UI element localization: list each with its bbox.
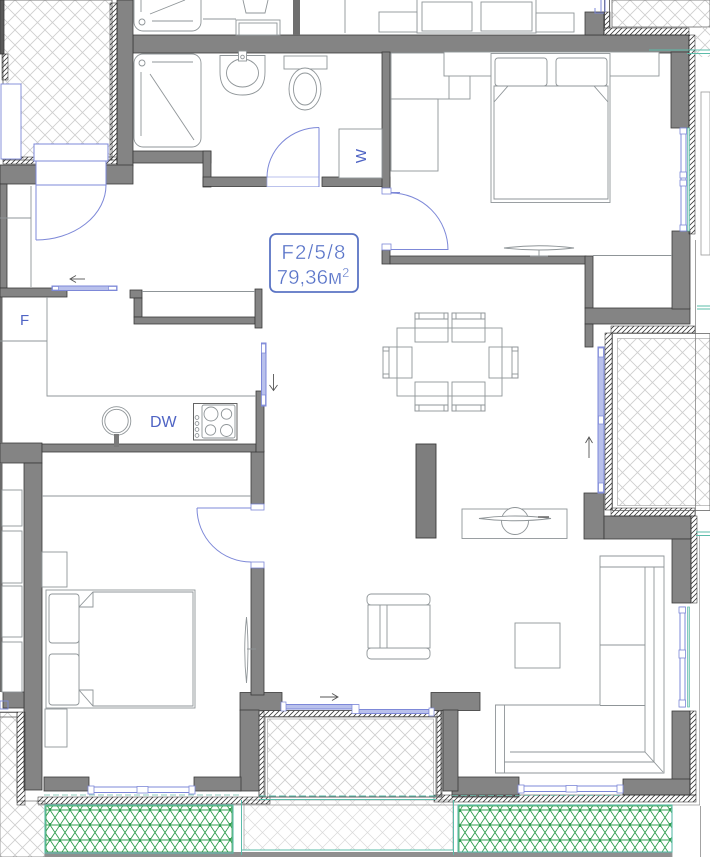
svg-text:F: F bbox=[20, 312, 29, 329]
svg-text:F2/5/8: F2/5/8 bbox=[281, 241, 346, 264]
svg-text:DW: DW bbox=[150, 414, 178, 431]
svg-text:79,36м2: 79,36м2 bbox=[277, 265, 350, 289]
svg-text:W: W bbox=[353, 148, 370, 163]
